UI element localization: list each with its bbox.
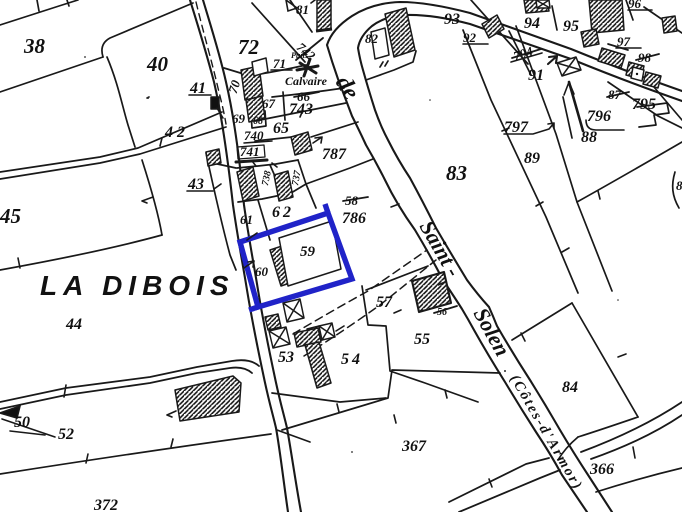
svg-text:91: 91 [528,67,544,84]
svg-text:372: 372 [93,497,118,512]
svg-text:738: 738 [260,170,274,187]
svg-text:LA DIBOIS: LA DIBOIS [40,270,235,301]
svg-text:42: 42 [164,124,189,141]
svg-text:98: 98 [638,50,652,65]
svg-text:81: 81 [296,2,309,17]
svg-text:797: 797 [504,119,529,136]
svg-text:786: 786 [342,210,366,227]
svg-text:93: 93 [444,11,460,28]
svg-text:83: 83 [446,161,467,185]
svg-text:96: 96 [628,0,642,11]
svg-text:54: 54 [341,351,363,368]
svg-text:366: 366 [589,461,614,478]
svg-text:88: 88 [581,129,597,146]
svg-text:796: 796 [587,108,611,125]
svg-text:40: 40 [146,52,169,76]
svg-text:84: 84 [562,379,578,396]
svg-text:53: 53 [278,349,294,366]
svg-text:38: 38 [23,34,46,58]
svg-text:Calvaire: Calvaire [285,74,328,88]
svg-text:367: 367 [401,438,427,455]
svg-text:61: 61 [240,212,253,227]
svg-text:41: 41 [189,80,206,97]
svg-text:56: 56 [437,307,447,318]
svg-text:71: 71 [273,56,286,71]
svg-text:55: 55 [414,331,430,348]
svg-text:741: 741 [240,144,260,159]
svg-text:742: 742 [294,39,319,63]
svg-text:72: 72 [238,35,260,59]
svg-text:740: 740 [244,128,264,143]
svg-text:43: 43 [187,176,204,193]
svg-text:59: 59 [300,244,316,260]
svg-text:58: 58 [345,193,359,208]
svg-text:69: 69 [232,111,246,126]
svg-text:82: 82 [365,31,379,46]
svg-text:44: 44 [65,316,82,333]
svg-text:45: 45 [0,204,21,228]
svg-text:52: 52 [58,426,74,443]
svg-text:795: 795 [632,96,656,113]
svg-text:95: 95 [563,18,579,35]
svg-text:65: 65 [273,120,289,137]
svg-text:737: 737 [290,169,304,187]
svg-text:57: 57 [376,294,393,311]
svg-text:62: 62 [272,204,294,221]
svg-text:60: 60 [255,264,269,279]
svg-text:de: de [330,71,364,104]
svg-text:50: 50 [14,414,30,431]
svg-text:67: 67 [262,96,276,111]
svg-text:68: 68 [253,116,263,127]
svg-text:94: 94 [524,15,540,32]
svg-text:8: 8 [676,178,682,193]
svg-text:743: 743 [289,101,313,118]
svg-text:787: 787 [322,146,347,163]
svg-text:92: 92 [463,30,477,45]
svg-text:87: 87 [608,87,622,102]
svg-text:97: 97 [617,34,631,49]
svg-text:89: 89 [524,150,540,167]
